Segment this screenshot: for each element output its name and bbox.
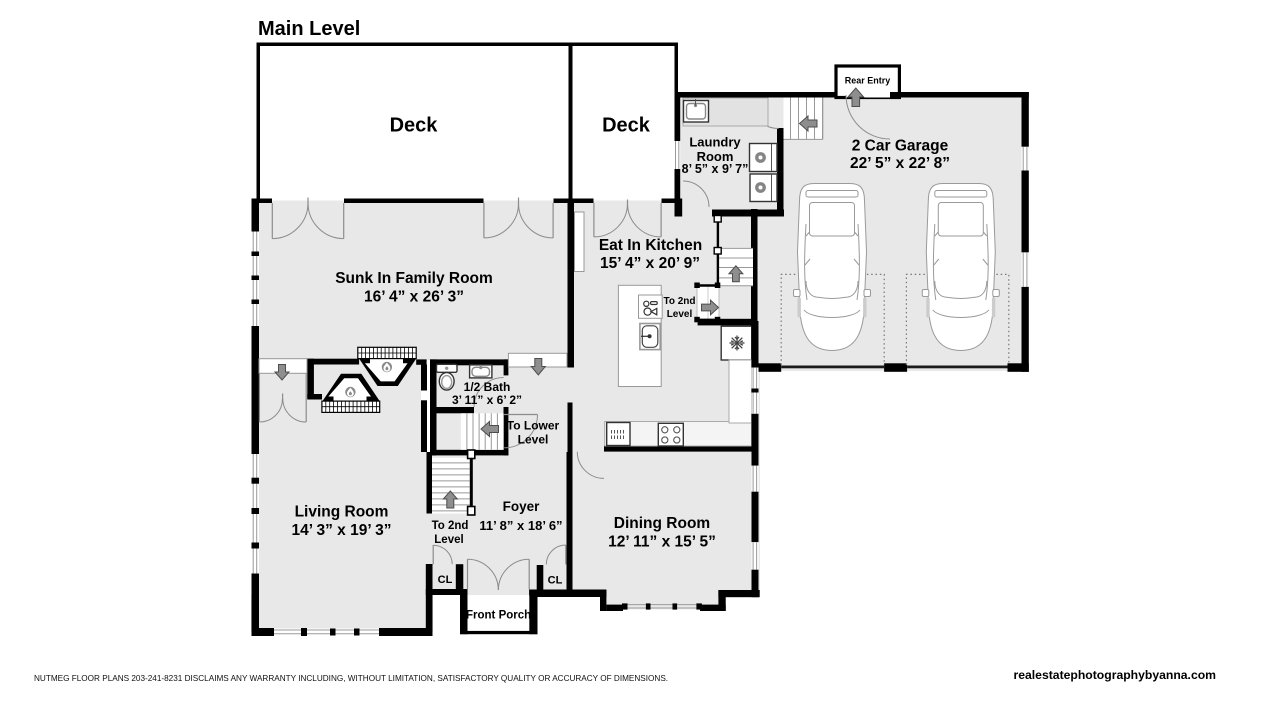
svg-text:11’ 8” x 18’ 6”: 11’ 8” x 18’ 6”: [479, 518, 562, 533]
svg-text:Dining Room: Dining Room: [614, 515, 710, 532]
svg-text:CL: CL: [548, 575, 563, 587]
svg-text:CL: CL: [438, 574, 453, 586]
svg-text:12’ 11” x 15’ 5”: 12’ 11” x 15’ 5”: [608, 534, 716, 551]
svg-text:16’ 4” x 26’ 3”: 16’ 4” x 26’ 3”: [364, 289, 464, 306]
svg-text:14’ 3” x 19’ 3”: 14’ 3” x 19’ 3”: [292, 522, 392, 539]
svg-text:8’ 5” x 9’ 7”: 8’ 5” x 9’ 7”: [682, 162, 749, 176]
svg-text:Eat In Kitchen: Eat In Kitchen: [599, 237, 702, 254]
svg-text:Laundry: Laundry: [689, 134, 741, 149]
svg-text:15’ 4” x 20’ 9”: 15’ 4” x 20’ 9”: [600, 255, 700, 272]
svg-text:Front Porch: Front Porch: [466, 610, 531, 622]
svg-text:Living Room: Living Room: [295, 504, 389, 521]
svg-text:NUTMEG FLOOR PLANS 203-241-823: NUTMEG FLOOR PLANS 203-241-8231 DISCLAIM…: [34, 674, 668, 683]
svg-text:Sunk In Family Room: Sunk In Family Room: [335, 270, 493, 287]
svg-text:3’ 11” x 6’ 2”: 3’ 11” x 6’ 2”: [452, 393, 522, 407]
svg-text:1/2 Bath: 1/2 Bath: [464, 380, 511, 394]
svg-text:To 2nd: To 2nd: [663, 296, 695, 307]
svg-text:Level: Level: [518, 433, 549, 447]
svg-text:2 Car Garage: 2 Car Garage: [852, 138, 949, 155]
svg-text:To 2nd: To 2nd: [432, 520, 469, 532]
svg-text:Foyer: Foyer: [503, 499, 541, 514]
svg-text:Deck: Deck: [602, 114, 651, 136]
svg-text:realestatephotographybyanna.co: realestatephotographybyanna.com: [1014, 668, 1217, 682]
svg-text:Rear Entry: Rear Entry: [845, 76, 891, 86]
svg-text:Deck: Deck: [390, 114, 439, 136]
svg-text:22’ 5” x 22’ 8”: 22’ 5” x 22’ 8”: [850, 155, 950, 172]
svg-text:Level: Level: [434, 534, 463, 546]
svg-text:Level: Level: [667, 309, 693, 320]
svg-text:Main Level: Main Level: [258, 18, 360, 40]
svg-text:To Lower: To Lower: [507, 419, 560, 433]
